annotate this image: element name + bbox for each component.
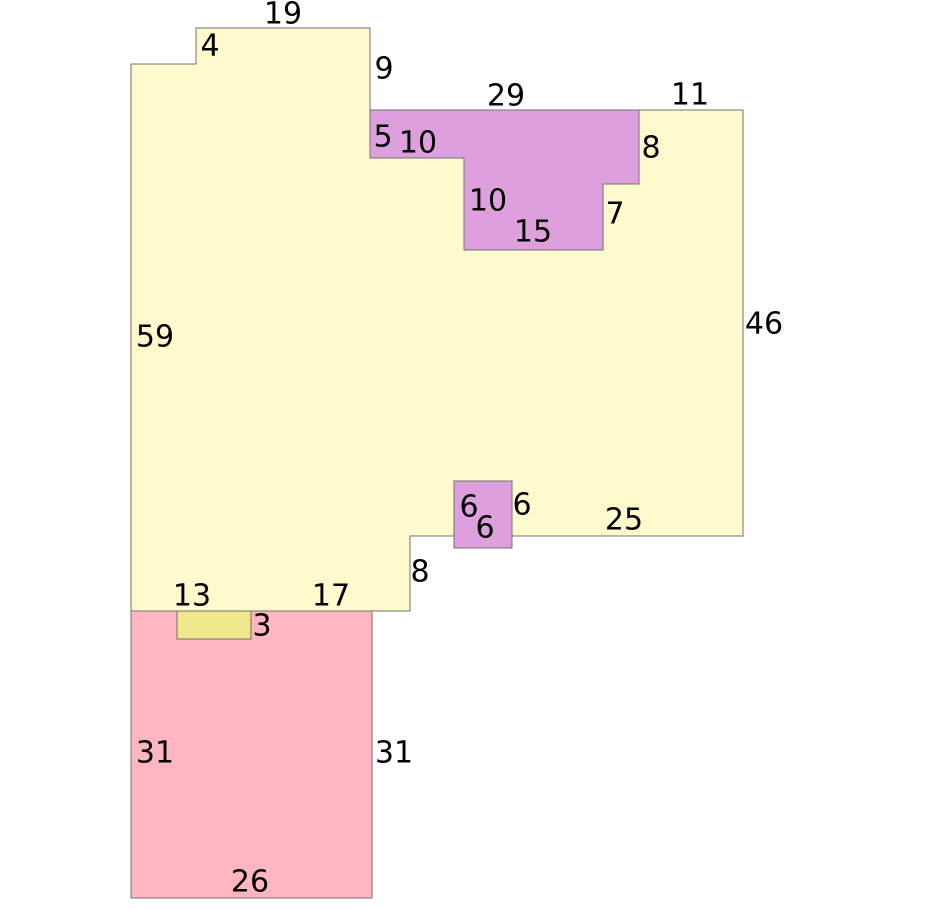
edge-label-20-3: 3 <box>252 609 271 644</box>
edge-label-4-11: 11 <box>671 78 709 113</box>
edge-label-21-31: 31 <box>136 736 174 771</box>
edge-label-9-7: 7 <box>605 197 624 232</box>
edge-label-15-6: 6 <box>475 511 494 546</box>
edge-label-2-9: 9 <box>374 52 393 87</box>
edge-label-18-13: 13 <box>173 579 211 614</box>
edge-label-14-6: 6 <box>512 488 531 523</box>
edge-label-11-59: 59 <box>136 320 174 355</box>
edge-label-7-8: 8 <box>641 131 660 166</box>
edge-label-23-26: 26 <box>231 865 269 900</box>
edge-label-5-5: 5 <box>373 120 392 155</box>
edge-label-22-31: 31 <box>375 736 413 771</box>
edge-label-0-19: 19 <box>264 0 302 32</box>
edge-label-12-46: 46 <box>745 307 783 342</box>
edge-label-17-8: 8 <box>410 555 429 590</box>
diagram-canvas: 19492911510810715594666625813173313126 <box>0 0 925 909</box>
edge-label-3-29: 29 <box>487 79 525 114</box>
edge-label-19-17: 17 <box>312 579 350 614</box>
edge-label-16-25: 25 <box>605 503 643 538</box>
khaki-rectangle <box>177 611 251 639</box>
diagram-svg: 19492911510810715594666625813173313126 <box>0 0 925 909</box>
edge-label-10-15: 15 <box>514 215 552 250</box>
edge-label-1-4: 4 <box>200 29 219 64</box>
edge-label-6-10: 10 <box>399 126 437 161</box>
edge-label-8-10: 10 <box>469 184 507 219</box>
